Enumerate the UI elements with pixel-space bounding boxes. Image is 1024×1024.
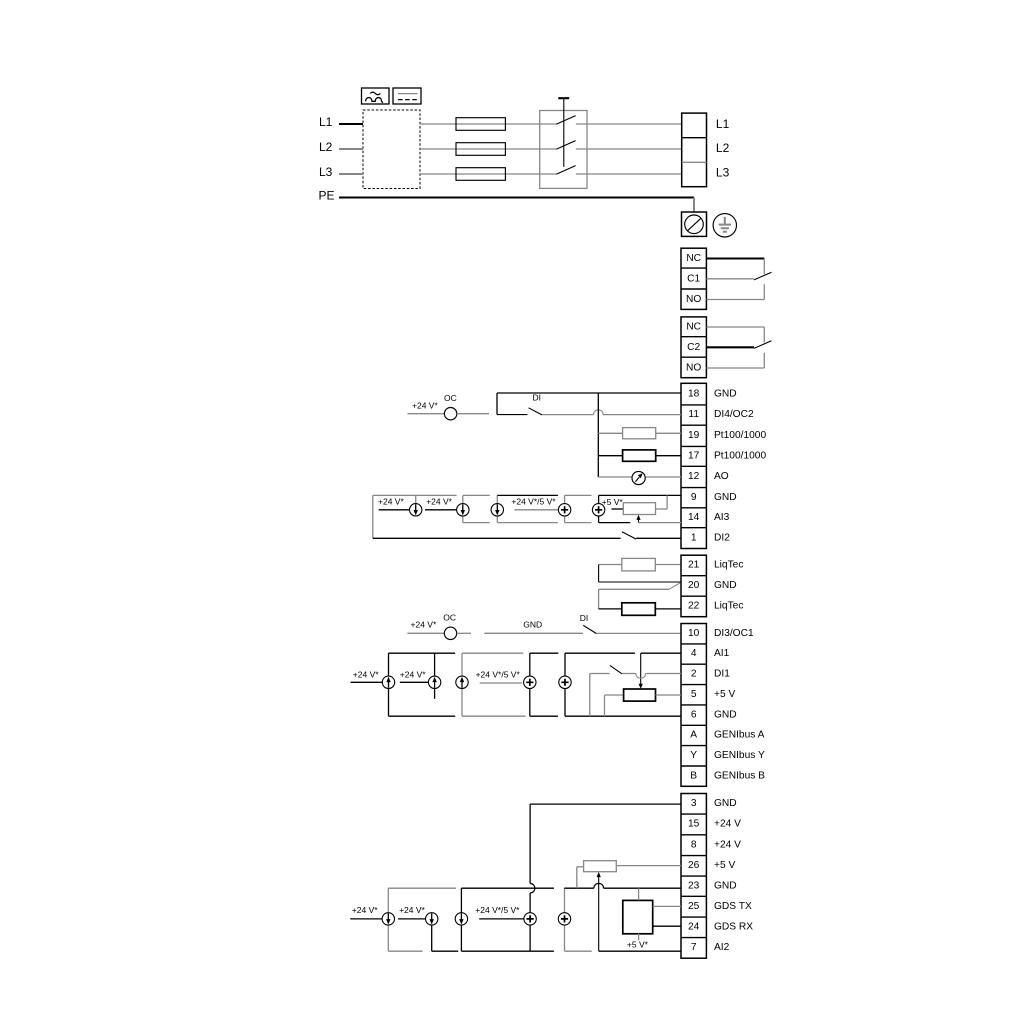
svg-text:GND: GND [714,709,737,720]
svg-text:L3: L3 [319,165,333,179]
svg-text:DI1: DI1 [714,669,730,680]
svg-text:Pt100/1000: Pt100/1000 [714,430,766,441]
svg-text:+24 V*/5 V*: +24 V*/5 V* [511,497,556,507]
svg-text:22: 22 [688,601,700,612]
svg-text:DI4/OC2: DI4/OC2 [714,409,754,420]
svg-text:C2: C2 [687,342,700,353]
svg-text:7: 7 [691,942,697,953]
svg-text:GENIbus B: GENIbus B [714,770,765,781]
svg-text:AO: AO [714,471,729,482]
svg-text:+5 V: +5 V [714,689,735,700]
svg-text:9: 9 [691,492,697,503]
svg-text:1: 1 [691,532,697,543]
svg-text:25: 25 [688,901,700,912]
svg-text:+24 V*: +24 V* [399,905,425,915]
svg-text:L2: L2 [319,140,333,154]
svg-text:GND: GND [714,798,737,809]
svg-text:+5 V: +5 V [714,860,735,871]
svg-text:OC: OC [443,613,456,623]
svg-text:+24 V*: +24 V* [352,905,378,915]
svg-text:21: 21 [688,560,700,571]
svg-text:GND: GND [714,388,737,399]
svg-text:L1: L1 [319,115,333,129]
svg-text:19: 19 [688,430,700,441]
svg-text:GND: GND [523,620,542,630]
svg-text:18: 18 [688,388,700,399]
svg-text:NC: NC [686,253,701,264]
svg-text:L3: L3 [716,166,730,180]
svg-text:OC: OC [444,393,457,403]
svg-text:Y: Y [690,750,697,761]
svg-text:GND: GND [714,492,737,503]
svg-text:GDS RX: GDS RX [714,922,753,933]
svg-text:GND: GND [714,580,737,591]
svg-text:14: 14 [688,512,700,523]
svg-text:+24 V*: +24 V* [353,669,379,679]
svg-text:+24 V*: +24 V* [426,497,452,507]
svg-text:NO: NO [686,294,701,305]
svg-text:+24 V*: +24 V* [412,400,438,410]
svg-text:5: 5 [691,689,697,700]
svg-text:+5 V*: +5 V* [602,497,624,507]
svg-text:+24 V*: +24 V* [378,497,404,507]
svg-text:+24 V*/5 V*: +24 V*/5 V* [476,669,521,679]
svg-text:23: 23 [688,880,700,891]
svg-text:8: 8 [691,839,697,850]
svg-text:Pt100/1000: Pt100/1000 [714,451,766,462]
svg-text:AI2: AI2 [714,942,730,953]
svg-text:B: B [690,770,697,781]
svg-text:AI1: AI1 [714,648,730,659]
svg-text:NC: NC [686,322,701,333]
svg-text:24: 24 [688,922,700,933]
svg-text:+24 V*: +24 V* [411,620,437,630]
svg-text:DI3/OC1: DI3/OC1 [714,628,754,639]
svg-text:DI: DI [533,392,542,402]
svg-text:11: 11 [688,409,699,420]
svg-text:C1: C1 [687,273,700,284]
svg-text:DI2: DI2 [714,532,730,543]
svg-text:PE: PE [319,189,335,203]
svg-text:+24 V: +24 V [714,839,741,850]
svg-text:GENIbus Y: GENIbus Y [714,750,765,761]
svg-text:20: 20 [688,580,700,591]
svg-text:A: A [690,730,697,741]
svg-text:GND: GND [714,880,737,891]
svg-text:26: 26 [688,860,700,871]
svg-text:10: 10 [688,628,700,639]
svg-text:17: 17 [688,451,700,462]
svg-text:4: 4 [691,648,697,659]
svg-text:6: 6 [691,709,697,720]
svg-text:AI3: AI3 [714,512,730,523]
svg-text:12: 12 [688,471,700,482]
svg-text:+24 V*: +24 V* [400,669,426,679]
svg-text:LiqTec: LiqTec [714,601,743,612]
svg-text:DI: DI [580,613,589,623]
svg-text:+24 V: +24 V [714,819,741,830]
svg-text:15: 15 [688,819,700,830]
svg-text:GENIbus A: GENIbus A [714,730,765,741]
svg-text:2: 2 [691,669,697,680]
svg-text:+5 V*: +5 V* [627,940,649,950]
svg-text:LiqTec: LiqTec [714,560,743,571]
svg-text:GDS TX: GDS TX [714,901,752,912]
svg-text:+24 V*/5 V*: +24 V*/5 V* [475,905,520,915]
svg-text:L2: L2 [716,141,730,155]
svg-text:3: 3 [691,798,697,809]
svg-text:NO: NO [686,362,701,373]
svg-text:L1: L1 [716,117,730,131]
